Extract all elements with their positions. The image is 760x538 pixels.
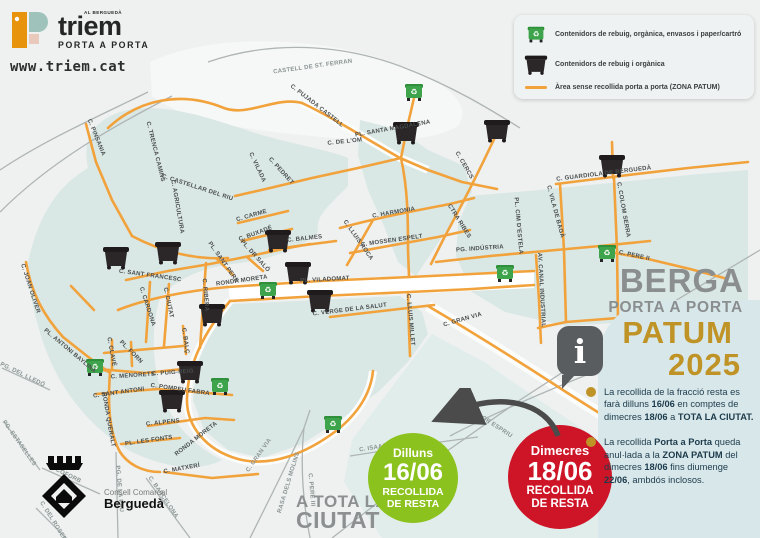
legend-row: Contenidors de rebuig i orgànica xyxy=(523,53,745,77)
info-icon: i xyxy=(574,335,587,368)
legend-label: Contenidors de rebuig, orgànica, envasos… xyxy=(555,30,741,39)
consell-comarcal-logo: Consell Comarcal Berguedà xyxy=(36,452,167,520)
org-name-line2: Berguedà xyxy=(104,497,167,510)
legend-row: Contenidors de rebuig, orgànica, envasos… xyxy=(523,23,745,47)
map-legend: Contenidors de rebuig, orgànica, envasos… xyxy=(514,15,754,99)
legend-label: Contenidors de rebuig i orgànica xyxy=(555,60,665,69)
triem-logo-icon xyxy=(10,10,52,50)
poster: ♻ xyxy=(0,0,760,538)
legend-row: Àrea sense recollida porta a porta (ZONA… xyxy=(523,83,745,92)
black-container-icon xyxy=(523,53,549,77)
consell-crest-icon xyxy=(36,452,100,520)
event-title: PATUM xyxy=(622,315,733,351)
orange-line-icon xyxy=(523,86,549,90)
bullet-text: La recollida de la fracció resta es farà… xyxy=(604,386,756,423)
event-year: 2025 xyxy=(668,347,741,383)
legend-label: Àrea sense recollida porta a porta (ZONA… xyxy=(555,83,720,92)
brand-subtitle: PORTA A PORTA xyxy=(58,40,149,50)
green-date-badge: Dilluns 16/06 RECOLLIDA DE RESTA xyxy=(368,433,458,523)
bullet-dot-icon xyxy=(586,437,596,447)
bullet-dot-icon xyxy=(586,387,596,397)
green-container-icon xyxy=(523,23,549,47)
info-speech-bubble: i xyxy=(557,326,603,376)
info-bullet-1: La recollida de la fracció resta es farà… xyxy=(586,386,756,423)
bullet-text: La recollida Porta a Porta queda anul·la… xyxy=(604,436,756,486)
info-bullets: La recollida de la fracció resta es farà… xyxy=(586,386,756,499)
city-title: BERGA xyxy=(620,262,744,300)
info-bullet-2: La recollida Porta a Porta queda anul·la… xyxy=(586,436,756,486)
brand-block: AL BERGUEDÀ triem PORTA A PORTA www.trie… xyxy=(10,10,149,75)
brand-name: triem xyxy=(58,15,149,38)
website-link[interactable]: www.triem.cat xyxy=(10,59,149,75)
